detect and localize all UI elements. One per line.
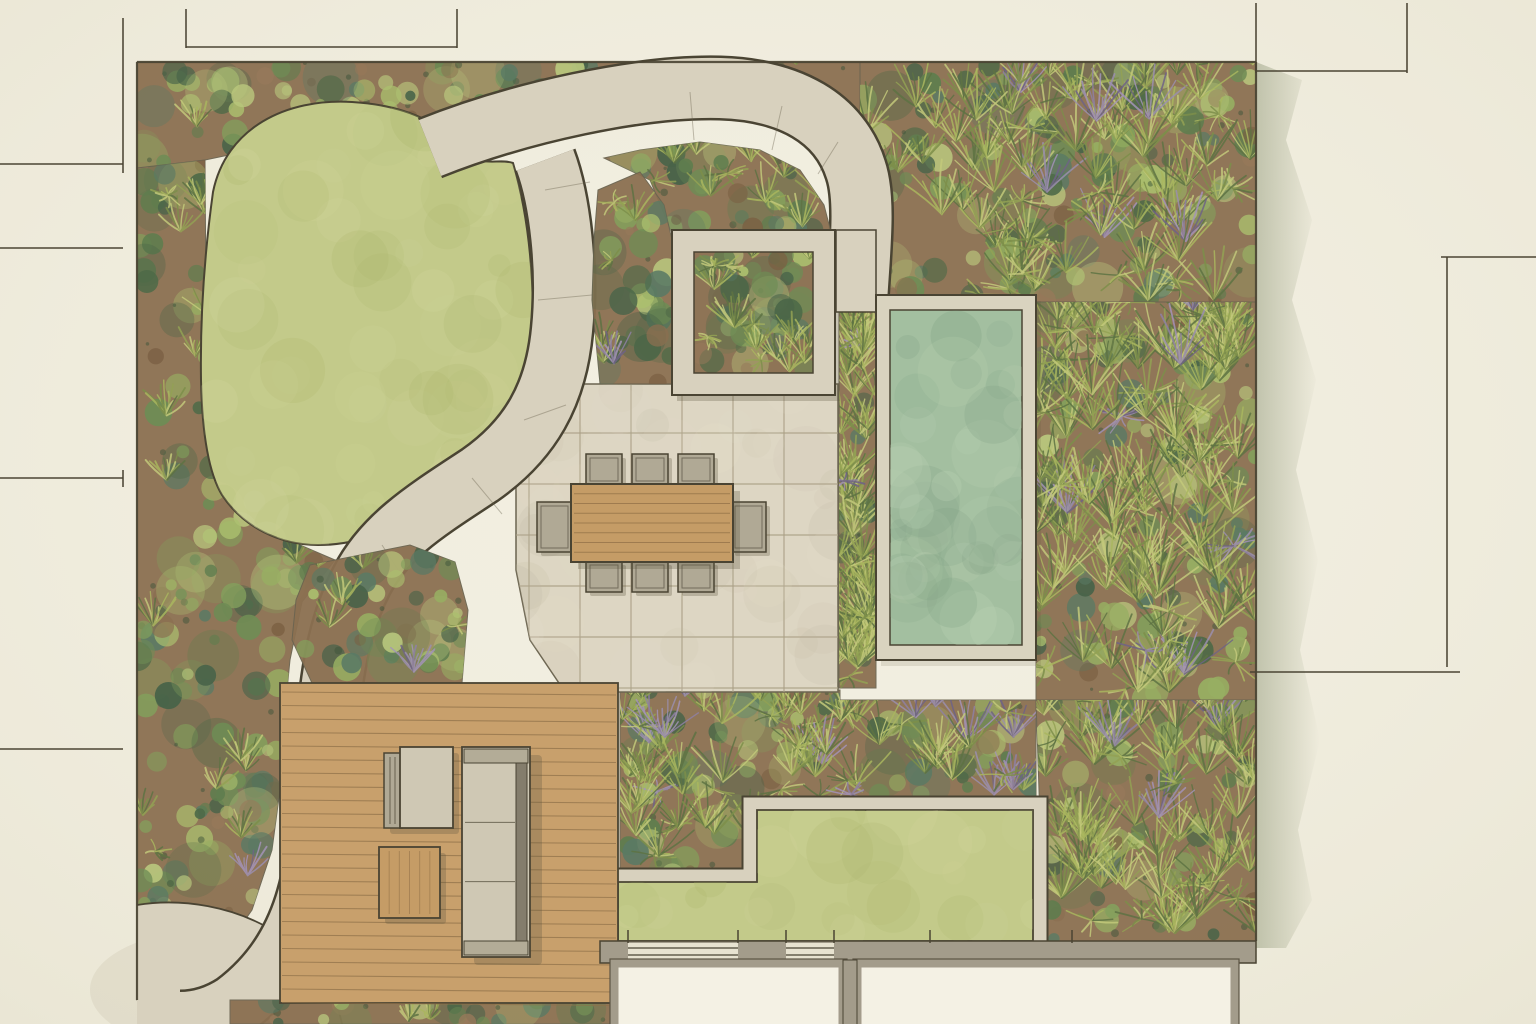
coffee-table [379,847,446,924]
lounge-chair [384,747,459,834]
sliding-door [786,943,834,961]
pool [860,295,1052,666]
house-room [614,963,843,1024]
dining-table [571,484,740,569]
planter-pool-wall [836,230,876,312]
garden-plan-canvas [0,0,1536,1024]
planting-bed-bed-east [999,246,1288,714]
garden-plan-stage [0,0,1536,1024]
sliding-door [628,943,738,961]
house-footprint [600,930,1256,1024]
deck [280,683,618,1006]
house-room [857,963,1235,1024]
house-interior-wall [843,960,857,1024]
sofa [462,747,530,957]
